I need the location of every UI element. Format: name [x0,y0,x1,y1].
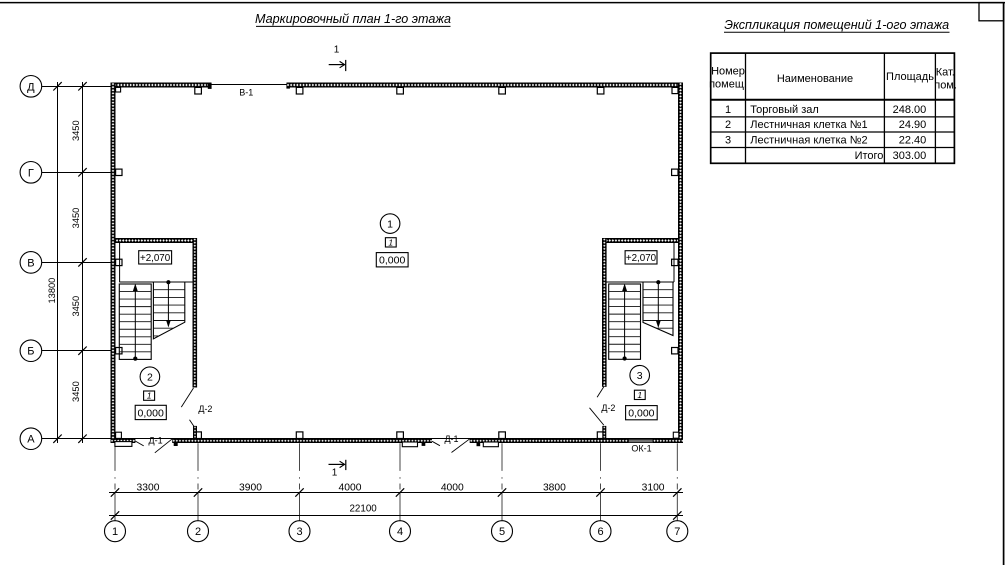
svg-text:1: 1 [147,391,152,401]
svg-text:3: 3 [725,135,731,147]
svg-text:помещ.: помещ. [709,78,747,90]
svg-text:24.90: 24.90 [899,119,927,131]
svg-text:1: 1 [112,526,118,538]
svg-text:Лестничная клетка №1: Лестничная клетка №1 [750,119,867,131]
svg-text:3450: 3450 [71,208,81,229]
svg-text:Кат.: Кат. [936,67,955,79]
svg-text:Д-1: Д-1 [444,434,458,444]
svg-text:В: В [27,257,34,269]
svg-text:3800: 3800 [543,483,566,494]
svg-text:3450: 3450 [71,296,81,317]
svg-text:0,000: 0,000 [138,407,164,419]
svg-text:3900: 3900 [239,483,262,494]
svg-text:Д-2: Д-2 [601,403,615,413]
svg-text:А: А [27,434,35,446]
svg-text:2: 2 [195,526,201,538]
svg-text:3450: 3450 [71,120,81,141]
svg-text:В-1: В-1 [239,87,253,97]
svg-text:3: 3 [296,526,302,538]
svg-text:1: 1 [334,45,340,56]
svg-text:248.00: 248.00 [893,104,927,116]
svg-text:Б: Б [27,346,34,358]
svg-text:3450: 3450 [71,381,81,402]
svg-text:Итого: Итого [855,150,884,162]
svg-text:3: 3 [637,370,643,382]
svg-text:1: 1 [637,390,642,400]
svg-text:6: 6 [597,526,603,538]
svg-text:4000: 4000 [441,483,464,494]
svg-text:4000: 4000 [339,483,362,494]
svg-text:0,000: 0,000 [628,408,654,420]
svg-text:4: 4 [397,526,403,538]
svg-text:Д-2: Д-2 [198,404,212,414]
svg-text:7: 7 [674,526,680,538]
svg-text:Экспликация помещений 1-ого эт: Экспликация помещений 1-ого этажа [724,18,949,32]
svg-text:Площадь: Площадь [886,71,934,83]
svg-text:Маркировочный план 1-го этажа: Маркировочный план 1-го этажа [255,12,451,26]
svg-text:0,000: 0,000 [379,255,405,267]
svg-text:22100: 22100 [349,503,377,514]
svg-text:5: 5 [499,526,505,538]
svg-text:Наименование: Наименование [777,73,853,85]
svg-text:Г: Г [28,167,34,179]
svg-text:ОК-1: ОК-1 [631,444,651,454]
svg-text:1: 1 [332,467,338,478]
svg-text:+2,070: +2,070 [140,253,171,264]
svg-text:1: 1 [387,219,393,231]
svg-text:13800: 13800 [47,278,57,304]
svg-text:3300: 3300 [137,483,160,494]
svg-text:Лестничная клетка №2: Лестничная клетка №2 [750,135,867,147]
svg-text:1: 1 [388,237,393,247]
svg-text:303.00: 303.00 [893,150,927,162]
svg-text:Торговый зал: Торговый зал [750,104,819,116]
svg-text:Д: Д [27,81,35,93]
svg-text:Д-1: Д-1 [149,435,163,445]
svg-text:2: 2 [147,372,153,384]
svg-text:2: 2 [725,119,731,131]
svg-text:22.40: 22.40 [899,135,927,147]
svg-text:3100: 3100 [642,483,665,494]
svg-text:+2,070: +2,070 [626,253,657,264]
svg-text:Номер: Номер [711,66,745,78]
svg-text:1: 1 [725,104,731,116]
svg-text:пом.: пом. [934,79,957,91]
